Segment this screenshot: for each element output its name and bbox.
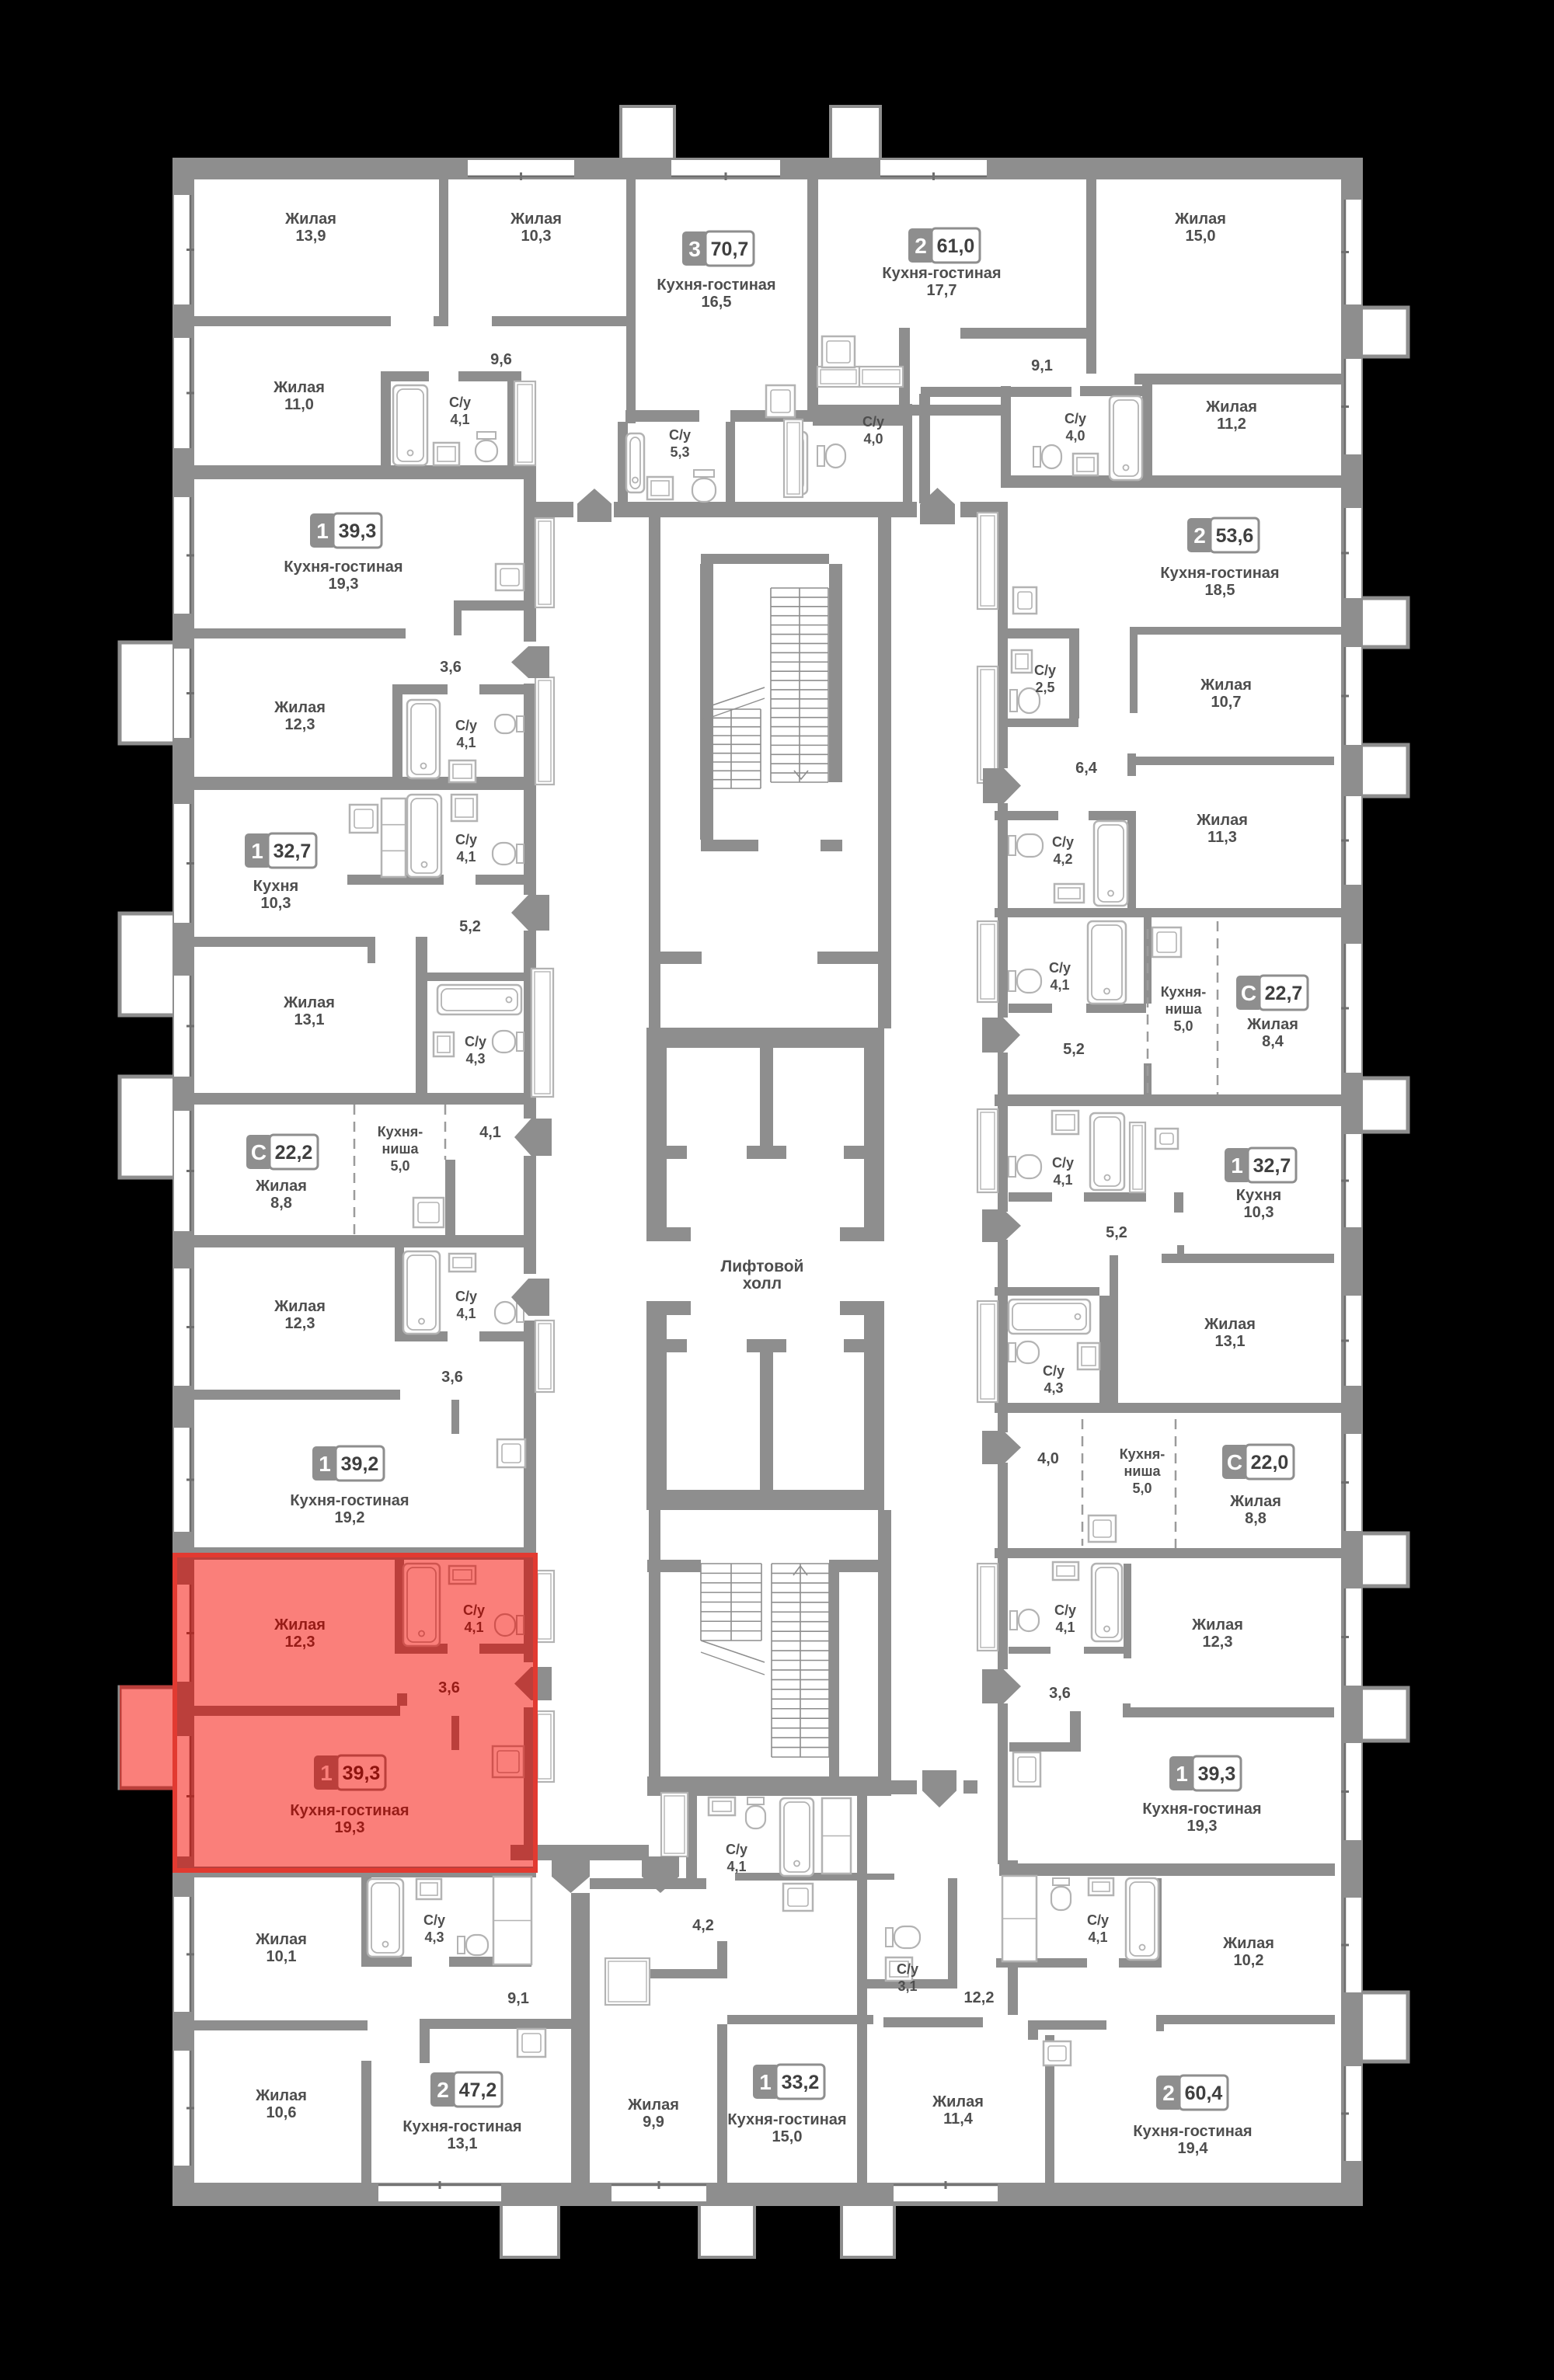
svg-text:С/у: С/у xyxy=(455,718,477,733)
svg-text:3,1: 3,1 xyxy=(897,1978,917,1994)
svg-text:5,2: 5,2 xyxy=(1106,1224,1127,1241)
svg-text:8,4: 8,4 xyxy=(1262,1033,1284,1050)
svg-text:1: 1 xyxy=(251,839,263,863)
svg-text:С/у: С/у xyxy=(455,1289,477,1304)
svg-text:19,3: 19,3 xyxy=(1187,1818,1218,1835)
svg-text:Жилая: Жилая xyxy=(274,1298,326,1315)
svg-text:19,3: 19,3 xyxy=(329,576,359,593)
svg-text:1: 1 xyxy=(319,1452,331,1476)
svg-text:Жилая: Жилая xyxy=(274,699,326,716)
svg-text:13,1: 13,1 xyxy=(448,2135,478,2152)
svg-text:2: 2 xyxy=(915,234,927,258)
svg-text:Кухня-гостиная: Кухня-гостиная xyxy=(882,265,1001,282)
svg-text:С/у: С/у xyxy=(465,1034,486,1049)
svg-text:С/у: С/у xyxy=(1087,1912,1109,1928)
svg-text:Кухня-гостиная: Кухня-гостиная xyxy=(284,558,402,576)
svg-text:2: 2 xyxy=(437,2078,449,2102)
svg-text:12,2: 12,2 xyxy=(964,1989,995,2006)
svg-text:12,3: 12,3 xyxy=(1203,1634,1233,1651)
svg-text:22,2: 22,2 xyxy=(275,1142,313,1164)
svg-text:Кухня-гостиная: Кухня-гостиная xyxy=(402,2118,521,2135)
svg-text:2: 2 xyxy=(1162,2081,1175,2105)
svg-text:С/у: С/у xyxy=(897,1961,918,1977)
svg-text:С/у: С/у xyxy=(726,1842,747,1857)
svg-text:4,1: 4,1 xyxy=(450,412,469,427)
svg-text:8,8: 8,8 xyxy=(1245,1510,1267,1527)
svg-text:33,2: 33,2 xyxy=(782,2072,820,2093)
svg-text:4,3: 4,3 xyxy=(465,1051,485,1066)
svg-text:Кухня: Кухня xyxy=(253,878,298,895)
svg-text:10,7: 10,7 xyxy=(1211,694,1242,711)
svg-text:4,3: 4,3 xyxy=(1044,1380,1063,1396)
svg-text:4,1: 4,1 xyxy=(456,849,476,865)
svg-text:Жилая: Жилая xyxy=(510,211,562,228)
svg-text:4,1: 4,1 xyxy=(479,1124,501,1141)
svg-text:11,0: 11,0 xyxy=(284,396,314,413)
svg-text:4,0: 4,0 xyxy=(1065,428,1085,444)
svg-text:13,9: 13,9 xyxy=(296,228,326,245)
svg-text:Жилая: Жилая xyxy=(1229,1493,1281,1510)
svg-text:Жилая: Жилая xyxy=(283,994,335,1011)
svg-text:9,1: 9,1 xyxy=(507,1990,529,2007)
svg-text:С/у: С/у xyxy=(1064,411,1086,426)
svg-text:Кухня-: Кухня- xyxy=(1161,984,1207,1000)
svg-text:ниша: ниша xyxy=(382,1141,420,1157)
svg-text:5,2: 5,2 xyxy=(459,918,481,935)
svg-text:3,6: 3,6 xyxy=(441,1369,463,1386)
svg-text:С/у: С/у xyxy=(455,832,477,847)
svg-text:39,2: 39,2 xyxy=(341,1453,379,1475)
svg-text:5,2: 5,2 xyxy=(1063,1041,1085,1058)
svg-text:Жилая: Жилая xyxy=(1196,812,1248,829)
svg-text:С/у: С/у xyxy=(1043,1363,1064,1379)
svg-text:32,7: 32,7 xyxy=(1253,1155,1291,1177)
svg-text:2: 2 xyxy=(1193,524,1206,548)
svg-text:С: С xyxy=(251,1140,267,1164)
svg-text:4,1: 4,1 xyxy=(1050,977,1069,993)
svg-text:Кухня: Кухня xyxy=(1236,1187,1281,1204)
svg-text:Кухня-гостиная: Кухня-гостиная xyxy=(1133,2123,1252,2140)
svg-text:17,7: 17,7 xyxy=(927,282,957,299)
svg-text:Жилая: Жилая xyxy=(1200,677,1252,694)
svg-text:4,1: 4,1 xyxy=(1088,1929,1107,1945)
svg-text:5,0: 5,0 xyxy=(390,1158,409,1174)
svg-text:С: С xyxy=(1241,981,1256,1005)
svg-text:11,3: 11,3 xyxy=(1207,829,1237,846)
svg-text:10,6: 10,6 xyxy=(267,2104,297,2121)
svg-text:3,6: 3,6 xyxy=(440,659,462,676)
svg-text:12,3: 12,3 xyxy=(285,1315,315,1332)
svg-text:С/у: С/у xyxy=(1054,1602,1076,1618)
svg-text:12,3: 12,3 xyxy=(285,716,315,733)
svg-text:10,3: 10,3 xyxy=(521,228,552,245)
svg-text:1: 1 xyxy=(316,519,329,543)
svg-text:16,5: 16,5 xyxy=(702,294,732,311)
svg-text:4,1: 4,1 xyxy=(456,735,476,750)
svg-text:Кухня-гостиная: Кухня-гостиная xyxy=(727,2111,846,2128)
svg-text:С/у: С/у xyxy=(669,427,691,443)
svg-text:2,5: 2,5 xyxy=(1035,680,1054,695)
svg-text:19,2: 19,2 xyxy=(335,1509,365,1526)
svg-text:Кухня-: Кухня- xyxy=(378,1124,423,1140)
svg-text:Жилая: Жилая xyxy=(932,2093,984,2110)
svg-text:Кухня-гостиная: Кухня-гостиная xyxy=(657,277,775,294)
svg-text:39,3: 39,3 xyxy=(339,520,377,542)
svg-text:ниша: ниша xyxy=(1124,1463,1162,1479)
svg-text:Жилая: Жилая xyxy=(273,379,325,396)
svg-text:Жилая: Жилая xyxy=(255,1931,307,1948)
svg-text:6,4: 6,4 xyxy=(1075,760,1098,777)
svg-text:4,1: 4,1 xyxy=(1055,1620,1075,1635)
svg-text:8,8: 8,8 xyxy=(270,1195,292,1212)
svg-text:39,3: 39,3 xyxy=(1198,1763,1236,1785)
svg-text:70,7: 70,7 xyxy=(711,238,749,260)
svg-text:4,0: 4,0 xyxy=(863,431,883,447)
svg-text:С: С xyxy=(1227,1450,1242,1474)
svg-text:4,3: 4,3 xyxy=(424,1929,444,1945)
svg-text:5,0: 5,0 xyxy=(1132,1481,1152,1496)
svg-text:13,1: 13,1 xyxy=(1215,1333,1246,1350)
svg-text:13,1: 13,1 xyxy=(294,1011,325,1028)
svg-text:1: 1 xyxy=(1231,1153,1243,1178)
svg-text:47,2: 47,2 xyxy=(459,2079,497,2101)
svg-text:1: 1 xyxy=(759,2070,772,2094)
svg-text:Жилая: Жилая xyxy=(627,2096,679,2114)
svg-text:5,3: 5,3 xyxy=(670,444,689,460)
svg-text:Жилая: Жилая xyxy=(1205,398,1257,416)
svg-text:С/у: С/у xyxy=(423,1912,445,1928)
svg-text:С/у: С/у xyxy=(862,414,884,430)
svg-text:9,6: 9,6 xyxy=(490,351,512,368)
svg-text:9,1: 9,1 xyxy=(1031,357,1053,374)
svg-text:Жилая: Жилая xyxy=(284,211,336,228)
svg-text:10,2: 10,2 xyxy=(1234,1952,1264,1969)
svg-text:3,6: 3,6 xyxy=(1049,1685,1071,1702)
svg-text:19,4: 19,4 xyxy=(1178,2140,1209,2157)
svg-text:Жилая: Жилая xyxy=(1174,211,1226,228)
svg-text:Жилая: Жилая xyxy=(1191,1616,1243,1634)
svg-text:10,1: 10,1 xyxy=(267,1948,297,1965)
svg-text:Жилая: Жилая xyxy=(1204,1316,1256,1333)
svg-text:60,4: 60,4 xyxy=(1185,2082,1223,2104)
svg-text:9,9: 9,9 xyxy=(643,2114,664,2131)
svg-text:53,6: 53,6 xyxy=(1216,525,1254,547)
svg-text:10,3: 10,3 xyxy=(1244,1204,1274,1221)
svg-text:Кухня-: Кухня- xyxy=(1120,1446,1165,1462)
svg-text:10,3: 10,3 xyxy=(261,895,291,912)
svg-text:Кухня-гостиная: Кухня-гостиная xyxy=(290,1492,409,1509)
svg-text:4,1: 4,1 xyxy=(456,1306,476,1321)
svg-text:Кухня-гостиная: Кухня-гостиная xyxy=(1142,1801,1261,1818)
svg-text:холл: холл xyxy=(743,1275,782,1293)
svg-text:4,1: 4,1 xyxy=(726,1859,746,1874)
svg-text:11,2: 11,2 xyxy=(1217,416,1246,433)
svg-text:5,0: 5,0 xyxy=(1173,1018,1193,1034)
svg-text:Лифтовой: Лифтовой xyxy=(721,1258,804,1275)
svg-text:Жилая: Жилая xyxy=(1246,1016,1298,1033)
svg-text:С/у: С/у xyxy=(1034,663,1056,678)
svg-text:С/у: С/у xyxy=(1052,834,1074,850)
svg-text:32,7: 32,7 xyxy=(274,840,312,862)
svg-text:Жилая: Жилая xyxy=(255,1178,307,1195)
svg-text:ниша: ниша xyxy=(1165,1001,1203,1017)
svg-text:Жилая: Жилая xyxy=(1222,1935,1274,1952)
svg-text:15,0: 15,0 xyxy=(1186,228,1216,245)
svg-text:С/у: С/у xyxy=(449,395,471,410)
svg-text:С/у: С/у xyxy=(1049,960,1071,976)
svg-text:4,2: 4,2 xyxy=(692,1917,714,1934)
svg-text:11,4: 11,4 xyxy=(943,2110,974,2128)
svg-text:С/у: С/у xyxy=(1052,1155,1074,1171)
svg-text:4,2: 4,2 xyxy=(1053,851,1072,867)
svg-text:22,7: 22,7 xyxy=(1265,983,1303,1004)
svg-text:61,0: 61,0 xyxy=(937,235,975,257)
svg-text:4,1: 4,1 xyxy=(1053,1172,1072,1188)
svg-text:Жилая: Жилая xyxy=(255,2087,307,2104)
svg-text:15,0: 15,0 xyxy=(772,2128,803,2145)
svg-text:4,0: 4,0 xyxy=(1037,1450,1059,1467)
svg-text:22,0: 22,0 xyxy=(1251,1452,1289,1474)
svg-text:Кухня-гостиная: Кухня-гостиная xyxy=(1160,565,1279,582)
svg-text:18,5: 18,5 xyxy=(1205,582,1235,599)
svg-text:3: 3 xyxy=(688,237,701,261)
svg-text:1: 1 xyxy=(1176,1762,1188,1786)
